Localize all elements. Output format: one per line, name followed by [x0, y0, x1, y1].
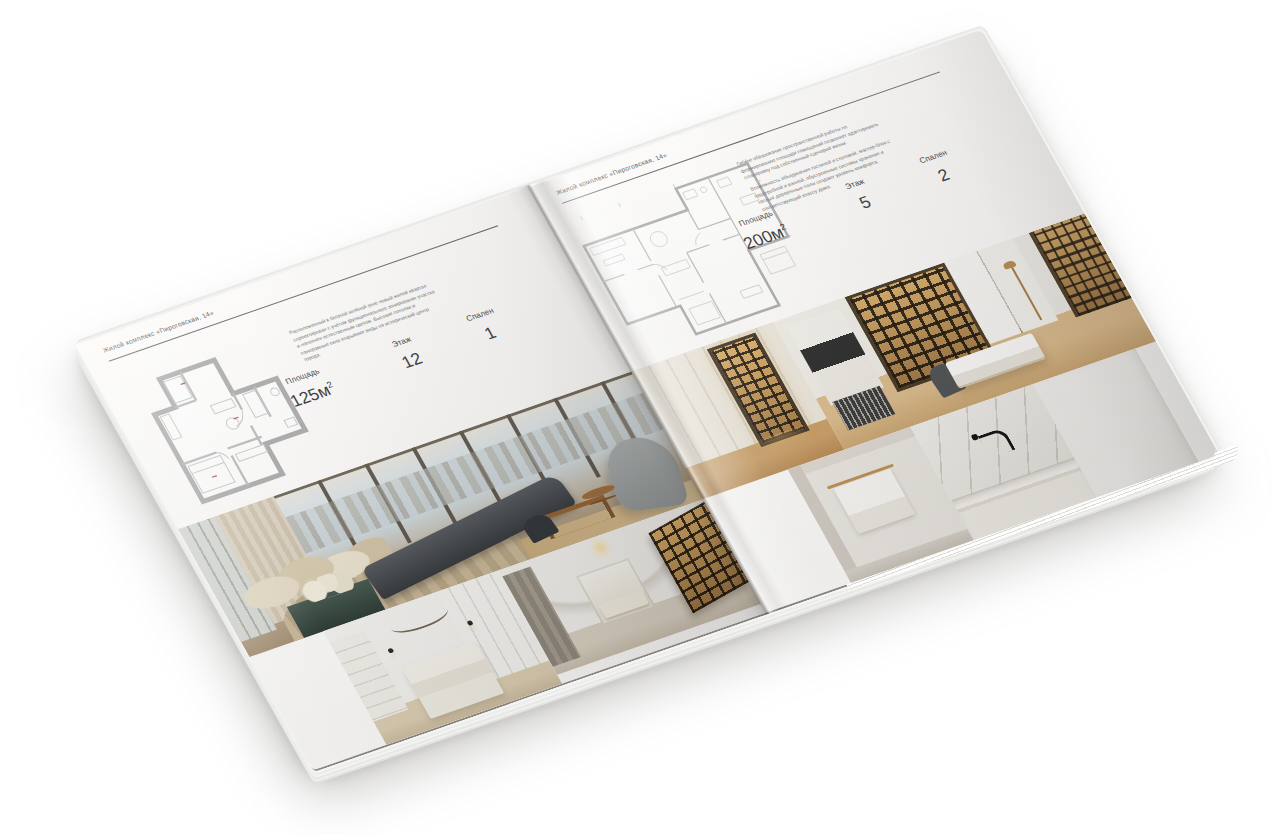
shelving-shape: [329, 630, 409, 722]
sconce-shape: [388, 648, 395, 654]
towel-shape: [834, 469, 916, 534]
black-faucet-shape: [977, 427, 1015, 458]
stat-bedrooms: Спален 2: [888, 138, 993, 200]
garland-shape: [386, 601, 452, 638]
stat-bedrooms: Спален 1: [434, 296, 539, 358]
page-header: Жилой комплекс «Пироговская, 14»: [101, 309, 215, 354]
scene: Жилой комплекс «Пироговская, 14»: [0, 0, 1280, 835]
